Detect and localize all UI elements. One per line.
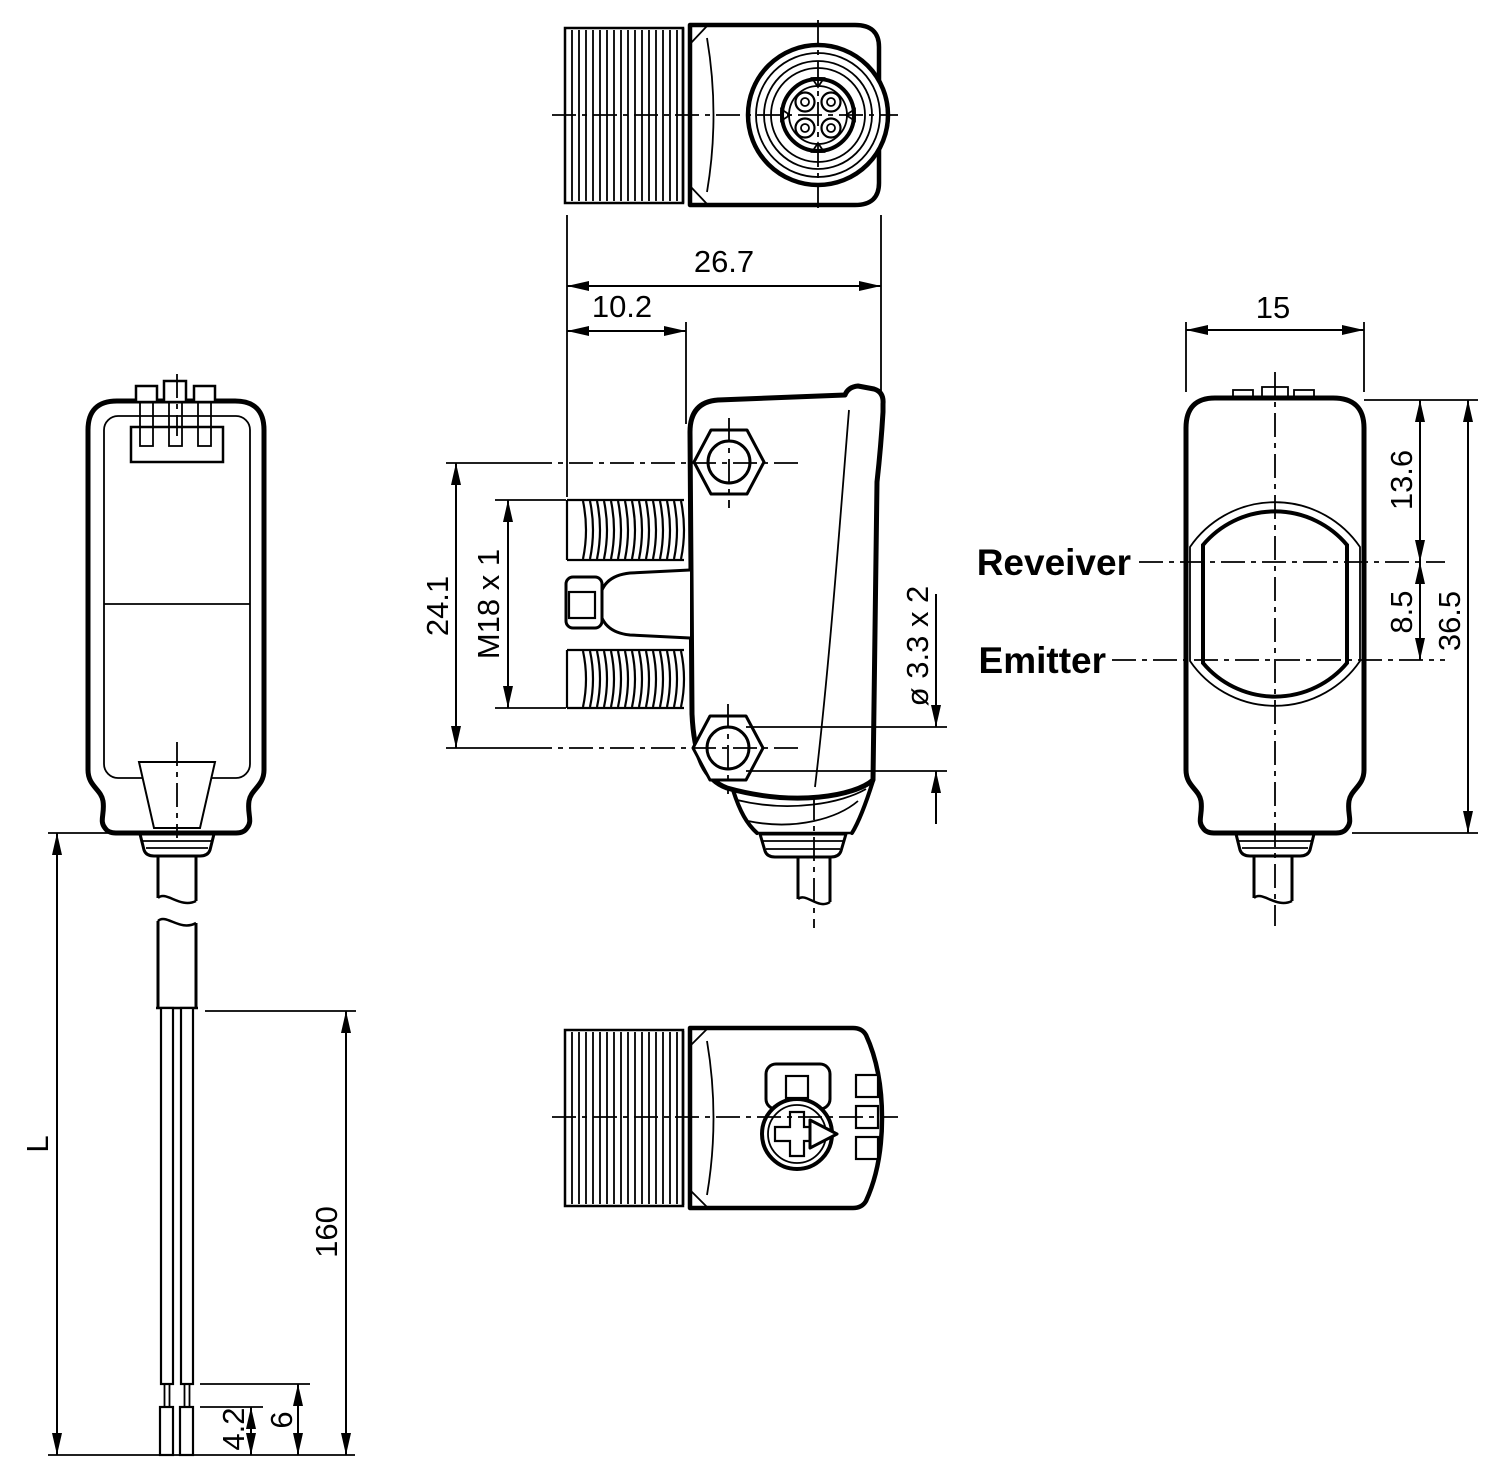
threaded-stud-lower: [566, 649, 686, 709]
dim-overall-width: 26.7: [694, 244, 754, 279]
dim-cable-length: L: [20, 1135, 55, 1152]
ferrule-1: [160, 1407, 173, 1455]
side-view: [528, 386, 883, 928]
thread-barrel-bottom: [565, 1030, 683, 1206]
dim-strip-length: 6: [264, 1411, 299, 1428]
threaded-stud-upper: [566, 499, 686, 561]
rear-view: [88, 374, 264, 1455]
dim-mounting-holes: ø 3.3 x 2: [900, 586, 935, 707]
dim-housing-height: 36.5: [1432, 591, 1467, 651]
dim-ferrule-length: 4.2: [216, 1407, 251, 1450]
dim-conductor-length: 160: [309, 1206, 344, 1258]
sensor-dimension-drawing: 26.7 10.2 24.1 M18 x 1 ø 3.3 x 2 15 13.6…: [0, 0, 1506, 1480]
drawing-canvas: 26.7 10.2 24.1 M18 x 1 ø 3.3 x 2 15 13.6…: [0, 0, 1506, 1480]
ferrule-2: [180, 1407, 193, 1455]
top-view: [552, 20, 898, 212]
wire-1: [161, 1008, 173, 1384]
conductor-2: [185, 1384, 190, 1407]
dim-optic-spacing: 8.5: [1384, 590, 1419, 633]
wire-2: [181, 1008, 193, 1384]
sensing-head-tab: [566, 577, 602, 628]
conductor-1: [165, 1384, 170, 1407]
cable-rear: [156, 856, 198, 1455]
dim-hole-pitch: 24.1: [420, 576, 455, 636]
dim-housing-width: 15: [1256, 290, 1290, 325]
dim-thread-length: 10.2: [592, 289, 652, 324]
dim-receiver-offset: 13.6: [1384, 450, 1419, 510]
bottom-view: [552, 1028, 898, 1208]
sensing-head-boss: [599, 570, 690, 638]
emitter-label: Emitter: [979, 640, 1106, 681]
thread-hatching-bottom: [572, 1032, 677, 1204]
receiver-label: Reveiver: [977, 542, 1131, 583]
dim-thread-size: M18 x 1: [471, 549, 506, 659]
optic-labels: Reveiver Emitter: [977, 542, 1131, 681]
